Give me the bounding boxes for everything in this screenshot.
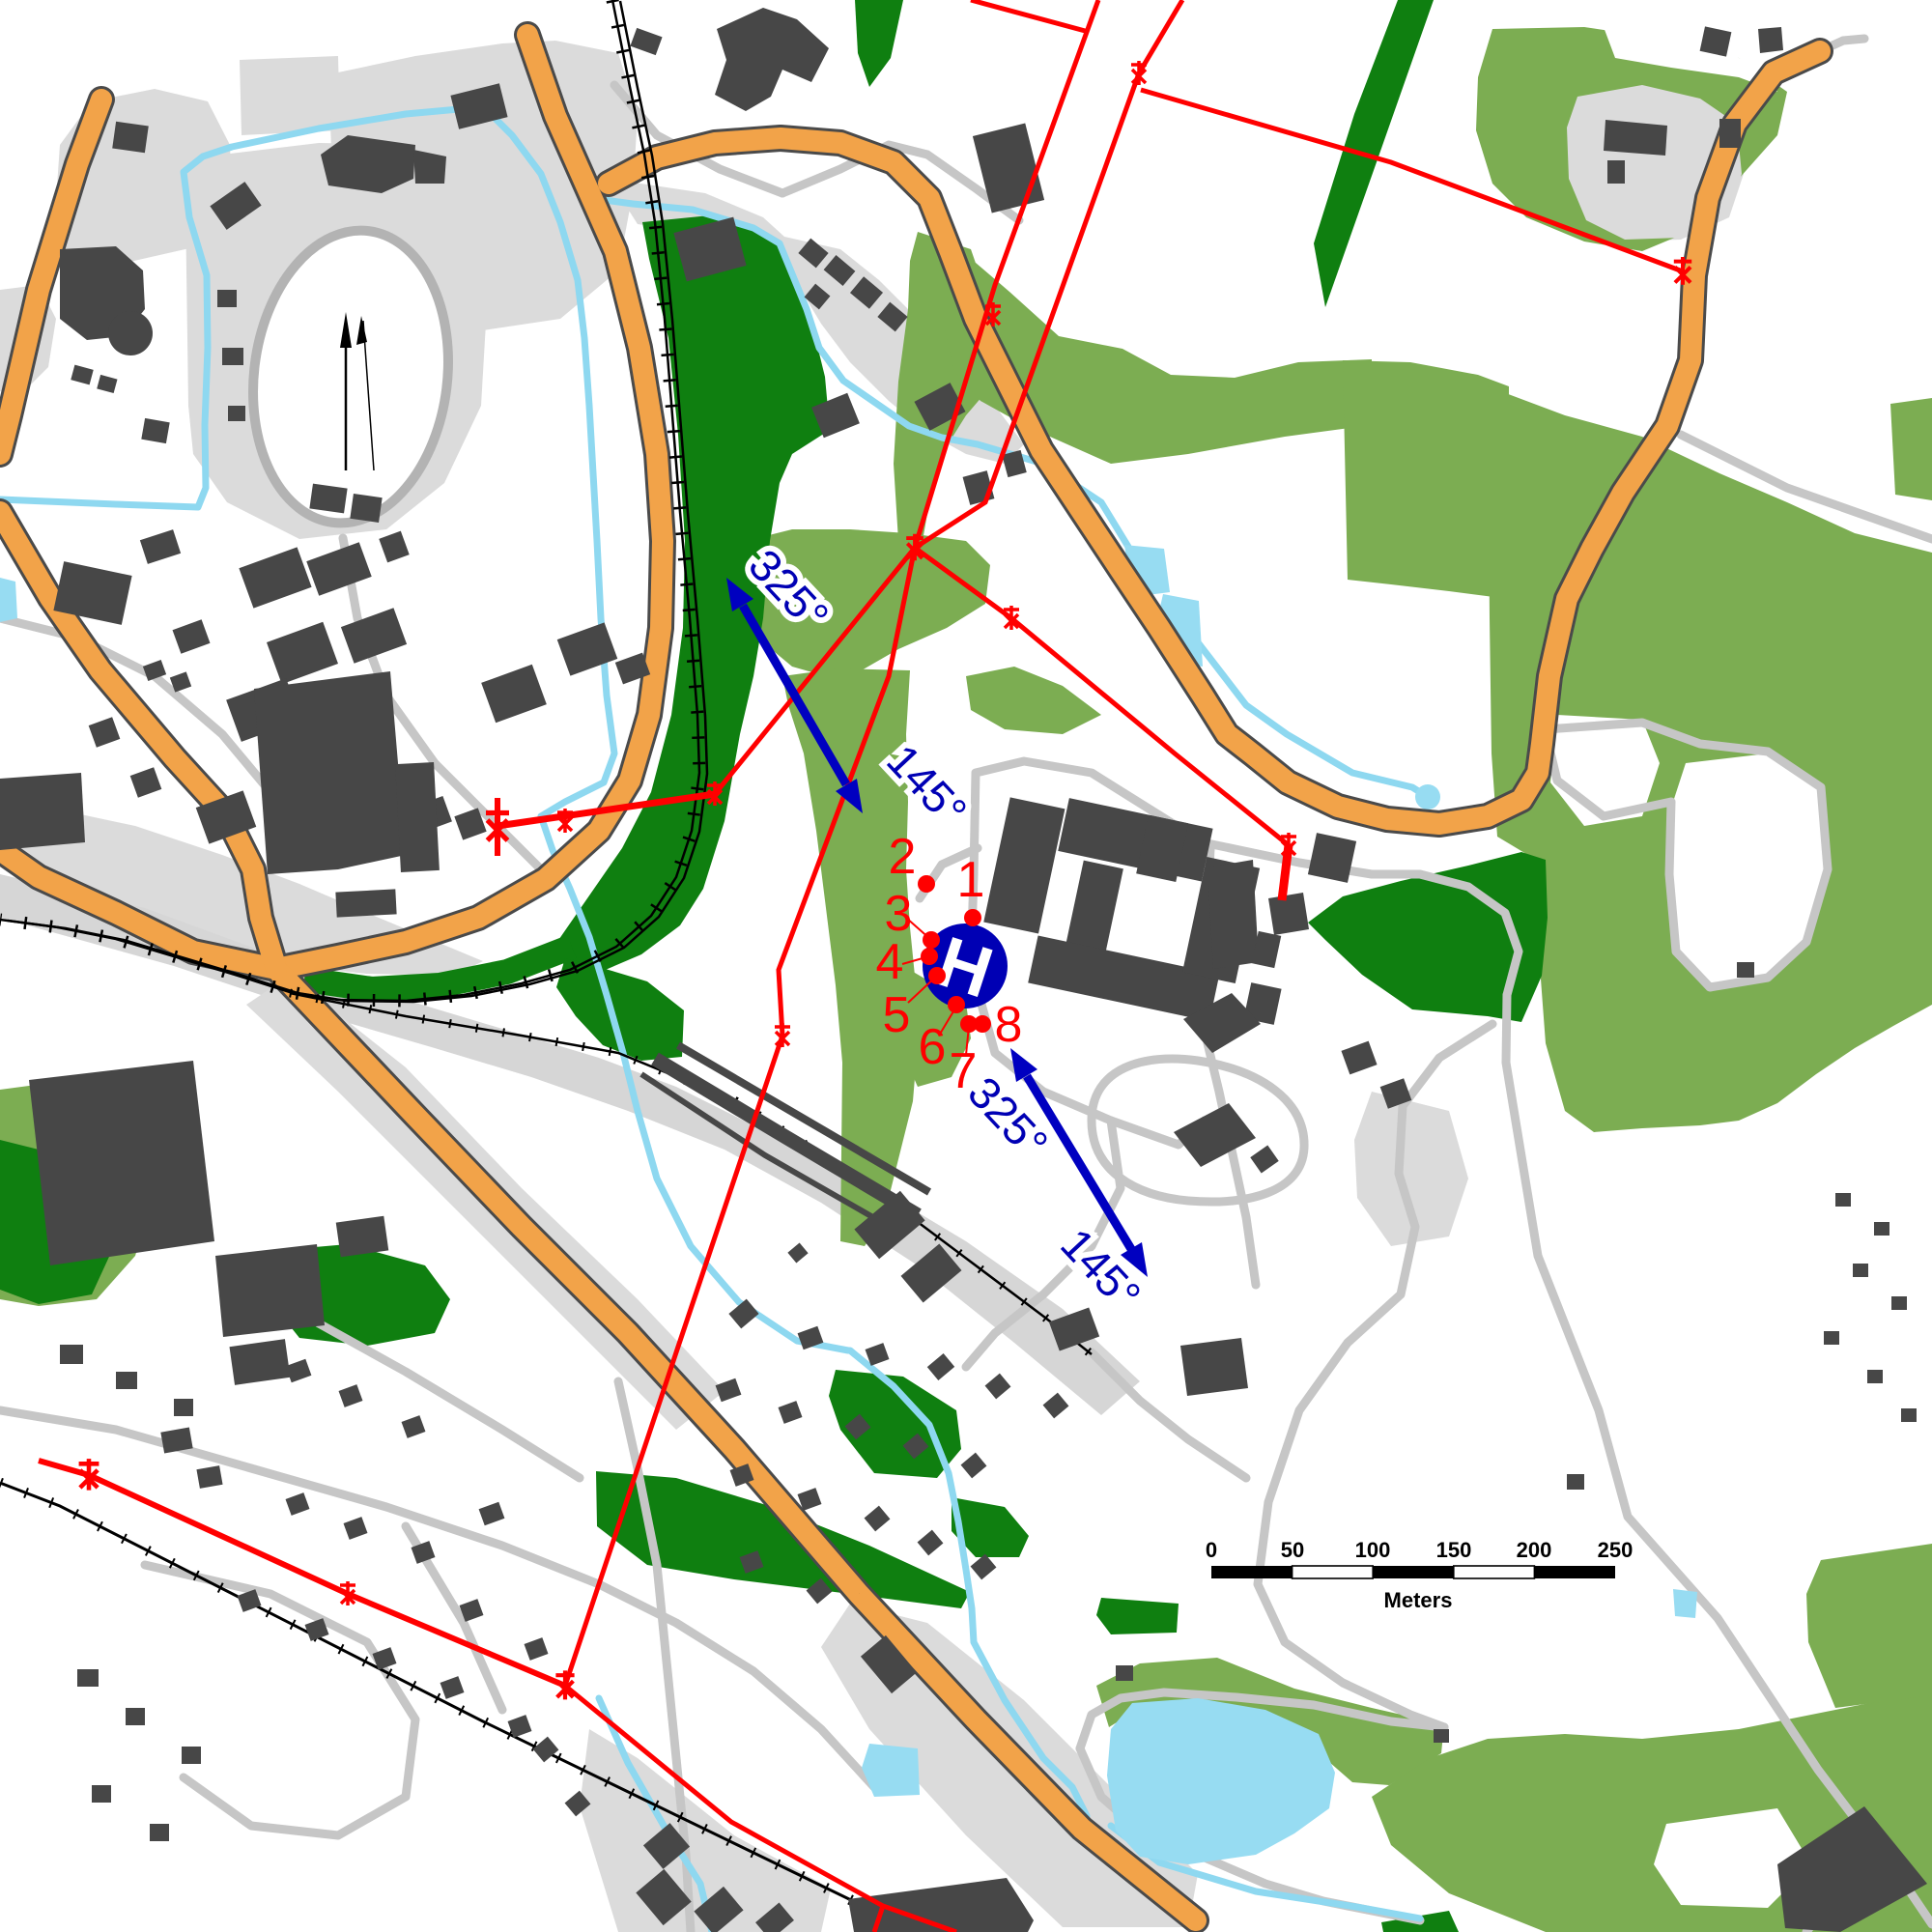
svg-text:2: 2 <box>889 829 917 885</box>
svg-text:4: 4 <box>876 934 904 990</box>
svg-text:Meters: Meters <box>1384 1588 1453 1612</box>
svg-text:200: 200 <box>1517 1538 1552 1562</box>
svg-text:7: 7 <box>950 1043 978 1099</box>
svg-text:50: 50 <box>1281 1538 1304 1562</box>
svg-text:100: 100 <box>1355 1538 1391 1562</box>
svg-text:8: 8 <box>995 997 1023 1053</box>
svg-text:5: 5 <box>883 987 911 1043</box>
svg-text:0: 0 <box>1206 1538 1217 1562</box>
svg-text:150: 150 <box>1436 1538 1472 1562</box>
svg-text:6: 6 <box>919 1019 947 1075</box>
svg-text:1: 1 <box>957 852 985 908</box>
svg-text:250: 250 <box>1598 1538 1634 1562</box>
